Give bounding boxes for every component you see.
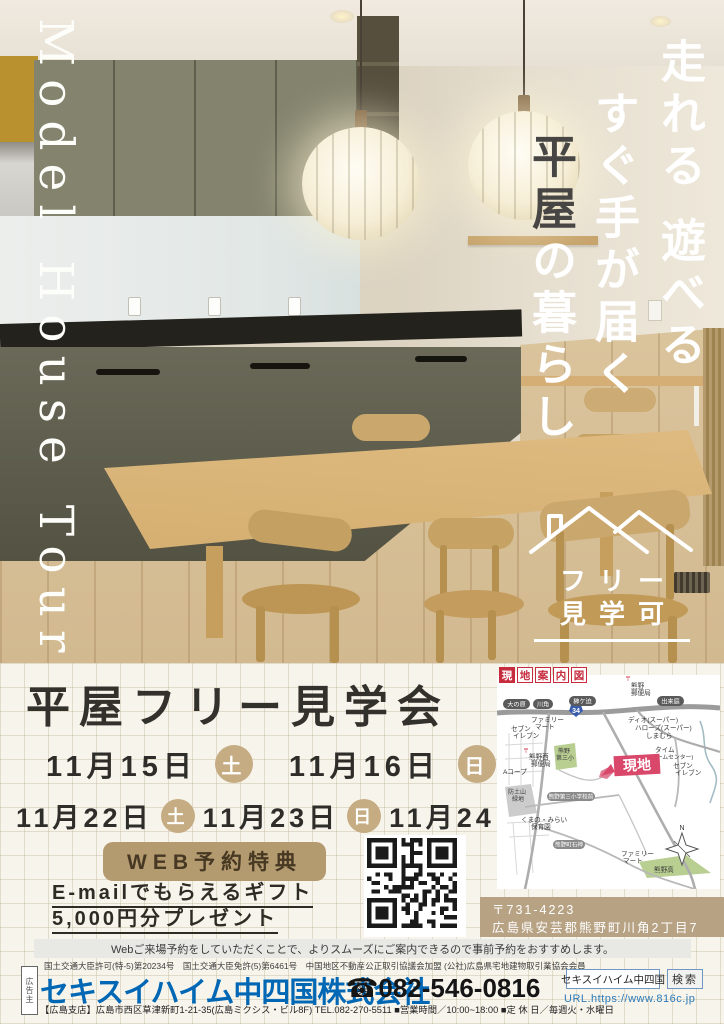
search-input[interactable]: セキスイハイム中四国 — [566, 969, 660, 989]
svg-text:熊野西郵便局: 熊野西郵便局 — [529, 752, 551, 768]
svg-text:34: 34 — [572, 708, 580, 715]
search-widget: セキスイハイム中四国 検索 — [566, 969, 703, 989]
day-badge: 土 — [215, 745, 253, 783]
chair-leg — [256, 606, 265, 662]
svg-text:大の原: 大の原 — [507, 701, 526, 709]
drawer-handle — [96, 369, 160, 375]
date-text: 11月16日 — [289, 743, 440, 785]
svg-text:熊野郵便局: 熊野郵便局 — [631, 681, 651, 697]
day-badge: 土 — [161, 799, 195, 833]
gift-line-2: 5,000円分プレゼント — [52, 902, 278, 934]
svg-text:ハローズ(スーパー): ハローズ(スーパー) — [635, 723, 692, 732]
map-title-char: 地 — [517, 667, 533, 683]
flyer-poster: Model House Tour 走れる 遊べる すぐ手が届く 平屋の暮らし フ… — [0, 0, 724, 1024]
event-title: 平屋フリー見学会 — [26, 671, 450, 735]
svg-text:出来庭: 出来庭 — [661, 698, 680, 706]
headline-column-2: すぐ手が届く — [591, 90, 636, 402]
info-section: 平屋フリー見学会 11月15日 土 11月16日 日 11月22日 土 11月2… — [0, 663, 724, 1024]
outlet — [288, 297, 301, 316]
headline-column-1: 走れる 遊べる — [657, 38, 702, 373]
badge-underline — [534, 639, 690, 642]
svg-text:現地: 現地 — [623, 756, 652, 773]
svg-text:ディオ(スーパー): ディオ(スーパー) — [628, 715, 678, 724]
interior-photo: Model House Tour 走れる 遊べる すぐ手が届く 平屋の暮らし フ… — [0, 0, 724, 663]
search-button[interactable]: 検索 — [667, 969, 703, 989]
outlet — [128, 297, 141, 316]
table-leg — [206, 546, 223, 638]
company-url: URL.https://www.816c.jp — [564, 993, 695, 1005]
drawer-handle — [250, 363, 310, 369]
window-blinds — [703, 328, 724, 566]
day-badge: 日 — [347, 799, 381, 833]
route-34-badge: 34 — [569, 705, 583, 717]
svg-text:セブンイレブン: セブンイレブン — [673, 761, 702, 777]
advertiser-box: 広告主 — [21, 966, 38, 1015]
outlet — [208, 297, 221, 316]
day-badge: 日 — [458, 745, 496, 783]
free-badge-line1: フリー — [540, 565, 697, 598]
site-marker: 現地 — [599, 754, 660, 779]
svg-text:熊野町石神: 熊野町石神 — [555, 841, 583, 849]
svg-text:しまむら: しまむら — [646, 732, 672, 740]
svg-text:Aコープ: Aコープ — [503, 768, 527, 776]
headline-column-3: 平屋の暮らし — [528, 133, 573, 445]
vertical-english-title: Model House Tour — [28, 18, 83, 663]
map-title: 現 地 案 内 図 — [499, 667, 587, 683]
branch-info: 【広島支店】広島市西区草津新町1-21-35(広島ミクシス・ビル8F) TEL.… — [40, 1002, 614, 1016]
drawer-handle — [415, 356, 467, 362]
date-text: 11月15日 — [46, 743, 197, 785]
headline-dark-part: 平屋 — [524, 133, 577, 237]
chair-leg — [436, 610, 444, 663]
downlight-icon — [330, 10, 354, 23]
chair-leg — [488, 610, 496, 660]
chair-leg — [330, 606, 339, 663]
postal-code: 〒731-4223 — [492, 901, 724, 919]
free-tour-badge: フリー 見学可 — [527, 498, 697, 642]
svg-text:〒: 〒 — [523, 748, 529, 755]
qr-code — [364, 835, 466, 937]
desk-leg — [694, 386, 699, 426]
chair — [352, 414, 430, 441]
svg-text:熊野高: 熊野高 — [654, 865, 674, 874]
svg-text:榊ケ迫: 榊ケ迫 — [573, 698, 592, 706]
svg-text:熊野第三小学校前: 熊野第三小学校前 — [549, 793, 594, 801]
date-row-1: 11月15日 土 11月16日 日 — [46, 743, 514, 785]
date-text: 11月22日 — [16, 796, 153, 835]
map-title-char: 図 — [571, 667, 587, 683]
svg-text:ファミリーマート: ファミリーマート — [531, 716, 564, 731]
pendant-lamp — [302, 127, 420, 240]
svg-text:川角: 川角 — [537, 701, 549, 709]
access-map: 34 大の原 川角 榊ケ迫 出来庭 熊野第三小学校前 熊野町石神 熊野郵便局 フ… — [497, 675, 720, 889]
downlight-icon — [650, 16, 671, 27]
street-address: 広島県安芸郡熊野町川角2丁目7 — [492, 919, 724, 937]
svg-text:〒: 〒 — [625, 676, 631, 683]
map-title-char: 案 — [535, 667, 551, 683]
date-row-2: 11月22日 土 11月23日 日 11月24日 月 — [16, 796, 576, 835]
free-badge-line2: 見学可 — [540, 598, 697, 631]
phone-number: ☎082-546-0816 — [346, 973, 540, 1004]
svg-text:N: N — [679, 825, 684, 832]
stream — [700, 721, 716, 803]
headline-light-part: の暮らし — [524, 237, 577, 445]
house-roof-icon — [527, 498, 697, 560]
address-bar: 〒731-4223 広島県安芸郡熊野町川角2丁目7 — [480, 897, 724, 937]
map-title-char: 内 — [553, 667, 569, 683]
reservation-notice: Webご来場予約をしていただくことで、よりスムーズにご案内できるので事前予約をお… — [34, 939, 691, 958]
map-title-char: 現 — [499, 667, 515, 683]
date-text: 11月23日 — [203, 796, 340, 835]
svg-text:くまの・みらい保育園: くまの・みらい保育園 — [521, 816, 568, 831]
